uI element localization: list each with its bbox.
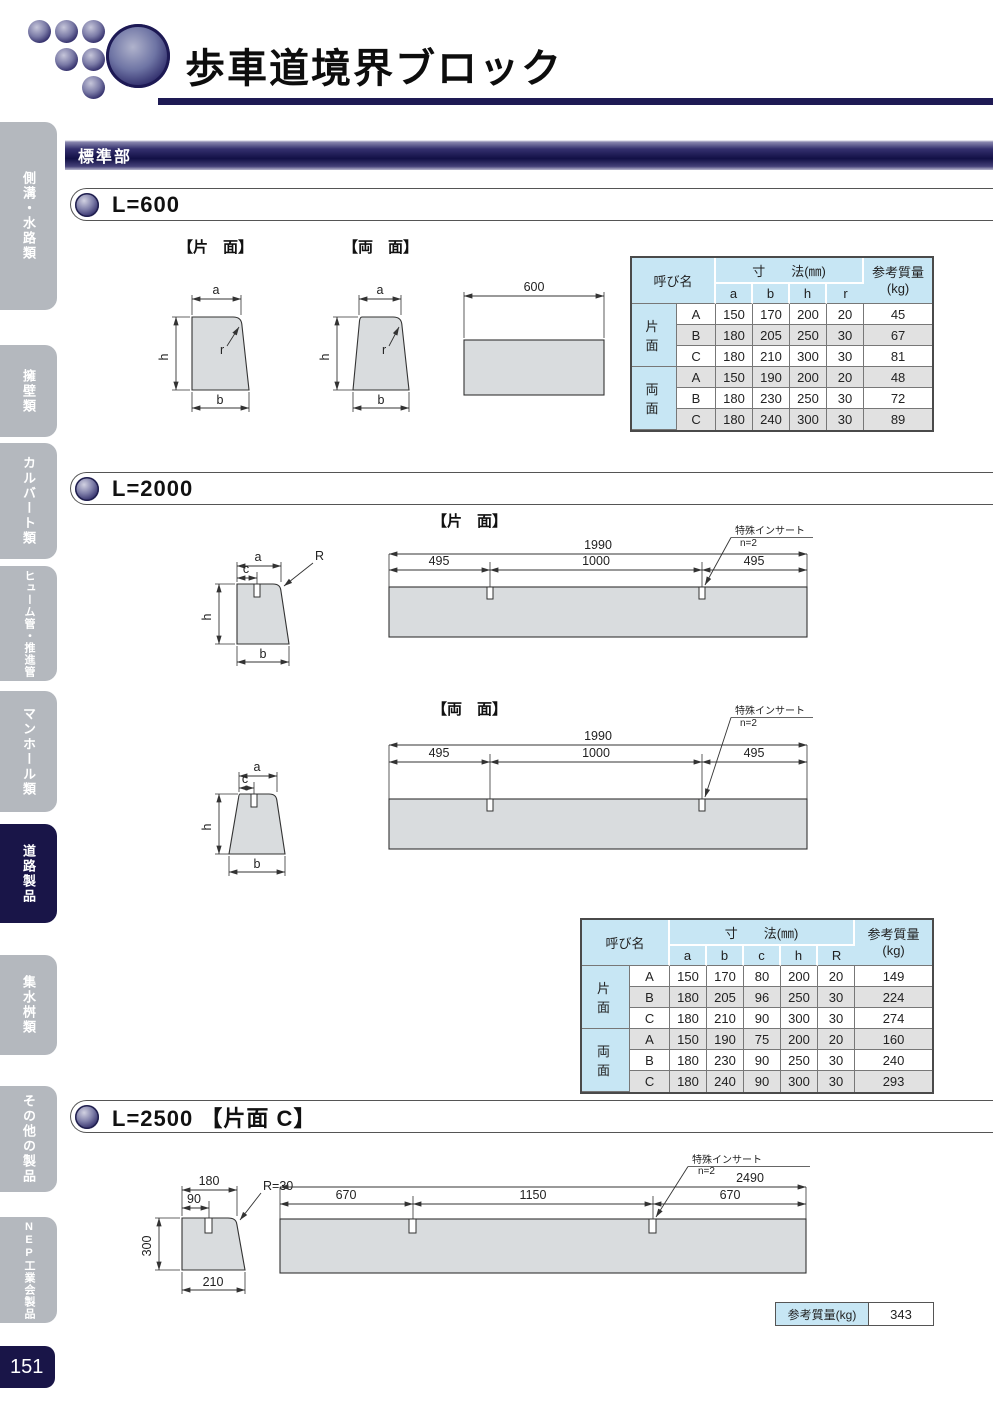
sidebar-item-sonota: その他の製品 (0, 1086, 57, 1192)
cell: 30 (827, 346, 864, 367)
cell: 293 (855, 1071, 932, 1092)
cell: 67 (864, 325, 932, 346)
dim-label: a (254, 760, 261, 774)
col-header: R (818, 946, 855, 966)
cell: A (630, 1029, 670, 1050)
sidebar-item-manhole: マンホール類 (0, 691, 57, 812)
col-header: h (790, 284, 827, 304)
logo-dot-icon (28, 20, 51, 43)
dim-label: 2490 (736, 1171, 764, 1185)
dim-label: h (200, 613, 214, 620)
catalog-page: 歩車道境界ブロック 側溝・水路類 擁壁類 カルバート類 ヒューム管・推進管 マン… (0, 0, 993, 1404)
col-header: 呼び名 (582, 920, 670, 966)
block-elevation (389, 799, 807, 849)
cell: 240 (753, 409, 790, 430)
cell: 170 (753, 304, 790, 325)
cell: B (677, 325, 716, 346)
cell: 81 (864, 346, 932, 367)
insert-notch (487, 587, 493, 599)
cell: 180 (716, 325, 753, 346)
sidebar-item-label: 側溝・水路類 (22, 171, 35, 261)
col-header: a (716, 284, 753, 304)
cell: 30 (827, 409, 864, 430)
table-row: 両 面 A1501902002048 (632, 367, 932, 388)
insert-notch (649, 1219, 656, 1233)
section-bullet-icon (75, 193, 99, 217)
cell: 150 (716, 367, 753, 388)
cell: 180 (670, 1071, 707, 1092)
mass-header: 参考質量 (868, 927, 920, 942)
table-row: 両 面 A1501907520020160 (582, 1029, 932, 1050)
cell: C (677, 346, 716, 367)
section-heading-l600: L=600 (70, 188, 993, 221)
cell: 180 (716, 409, 753, 430)
cell: 180 (670, 987, 707, 1008)
cell: 150 (670, 966, 707, 987)
col-header: 参考質量(kg) (864, 258, 932, 304)
dim-label: c (242, 772, 248, 786)
cell: 150 (716, 304, 753, 325)
drawing-l2000-katamen-elevation: 特殊インサート n=2 1990 495 1000 495 (383, 525, 813, 643)
dim-label: R (315, 549, 324, 563)
insert-notch (699, 587, 705, 599)
cell: 90 (744, 1050, 781, 1071)
ryomen-label: 【両 面】 (343, 236, 418, 257)
cell: 210 (753, 346, 790, 367)
sidebar-item-shusui: 集水桝類 (0, 955, 57, 1055)
drawing-l600-elevation: 600 (452, 268, 617, 403)
cell: 190 (707, 1029, 744, 1050)
table-row: 片 面 A1501702002045 (632, 304, 932, 325)
cell: 300 (781, 1071, 818, 1092)
dim-label: 1000 (582, 554, 610, 568)
section-title: L=2000 (112, 476, 193, 502)
drawing-l2000-katamen-cross: a c R h b (187, 532, 337, 692)
cell: 90 (744, 1071, 781, 1092)
logo-dot-icon (55, 20, 78, 43)
table-row: C1802109030030274 (582, 1008, 932, 1029)
cell: 20 (818, 1029, 855, 1050)
subsection-bar: 標準部 (65, 140, 993, 170)
cell: 240 (707, 1071, 744, 1092)
cell: 75 (744, 1029, 781, 1050)
cell: 30 (818, 1071, 855, 1092)
sidebar-item-label: マンホール類 (22, 707, 35, 797)
dim-label: 1150 (520, 1188, 547, 1202)
col-header: r (827, 284, 864, 304)
col-header: a (670, 946, 707, 966)
sidebar-item-humekan: ヒューム管・推進管 (0, 566, 57, 681)
page-number: 151 (0, 1346, 55, 1388)
logo-dot-icon (82, 48, 105, 71)
logo (0, 0, 180, 110)
cell: 170 (707, 966, 744, 987)
section-heading-l2500: L=2500 【片面 C】 (70, 1100, 993, 1133)
sidebar-item-doro-active: 道路製品 (0, 824, 57, 923)
sidebar-item-nep: NEP工業会製品 (0, 1217, 57, 1323)
cell: 180 (716, 346, 753, 367)
col-header: 参考質量(kg) (855, 920, 932, 966)
cell: 96 (744, 987, 781, 1008)
cell: 149 (855, 966, 932, 987)
dim-label: 1000 (582, 746, 610, 760)
cell: 240 (855, 1050, 932, 1071)
block-cross-section (353, 317, 409, 390)
cell: 205 (707, 987, 744, 1008)
insert-annotation: n=2 (698, 1166, 715, 1177)
insert-annotation: n=2 (740, 718, 757, 729)
cell: 250 (790, 388, 827, 409)
block-elevation (464, 340, 604, 395)
cell: 30 (818, 1008, 855, 1029)
col-header: b (707, 946, 744, 966)
cell: B (630, 987, 670, 1008)
cell: C (630, 1008, 670, 1029)
col-header: c (744, 946, 781, 966)
cell: 200 (790, 304, 827, 325)
insert-notch (254, 584, 260, 597)
cell: 89 (864, 409, 932, 430)
mass-unit: (kg) (887, 281, 909, 296)
table-row: B1802302503072 (632, 388, 932, 409)
cell: 30 (827, 325, 864, 346)
mass-header: 参考質量 (872, 265, 924, 280)
cell: 20 (827, 367, 864, 388)
cell: 20 (818, 966, 855, 987)
block-cross-section (237, 584, 289, 644)
dim-label: h (318, 353, 332, 360)
section-title: L=600 (112, 192, 180, 218)
section-bullet-icon (75, 477, 99, 501)
sidebar-item-yoheki: 擁壁類 (0, 345, 57, 437)
table-row: 片 面 A1501708020020149 (582, 966, 932, 987)
cell: 150 (670, 1029, 707, 1050)
cell: B (677, 388, 716, 409)
logo-dot-icon (82, 76, 105, 99)
reference-mass-label: 参考質量(kg) (775, 1302, 869, 1326)
cell: 30 (818, 987, 855, 1008)
dim-label: h (200, 823, 214, 830)
cell: 300 (790, 409, 827, 430)
table-row: B1802052503067 (632, 325, 932, 346)
cell: 200 (781, 1029, 818, 1050)
dim-label: a (213, 283, 220, 297)
cell: 250 (790, 325, 827, 346)
insert-notch (409, 1219, 416, 1233)
cell: 20 (827, 304, 864, 325)
sidebar-item-label: NEP工業会製品 (23, 1221, 34, 1320)
cell: 190 (753, 367, 790, 388)
cell: 250 (781, 1050, 818, 1071)
dim-label: c (243, 562, 249, 576)
cell: 230 (753, 388, 790, 409)
cell: 250 (781, 987, 818, 1008)
cell: 180 (716, 388, 753, 409)
reference-mass-value: 343 (869, 1302, 934, 1326)
dim-label: 670 (336, 1188, 357, 1202)
dim-label: a (377, 283, 384, 297)
table-row: C1802103003081 (632, 346, 932, 367)
cell: 90 (744, 1008, 781, 1029)
cell: 205 (753, 325, 790, 346)
insert-annotation: 特殊インサート (735, 704, 805, 717)
cell: 224 (855, 987, 932, 1008)
dim-label: b (378, 393, 385, 407)
reference-mass-box: 参考質量(kg) 343 (775, 1302, 934, 1326)
block-elevation (389, 587, 807, 637)
cell: 200 (781, 966, 818, 987)
insert-annotation: 特殊インサート (692, 1153, 762, 1166)
insert-notch (251, 794, 257, 807)
logo-dot-icon (82, 20, 105, 43)
insert-annotation: 特殊インサート (735, 524, 805, 537)
col-header: 呼び名 (632, 258, 716, 304)
dim-label: 90 (187, 1192, 201, 1206)
table-row: C1802403003089 (632, 409, 932, 430)
cell: 45 (864, 304, 932, 325)
dim-label: r (382, 343, 386, 357)
page-title: 歩車道境界ブロック (185, 36, 563, 94)
insert-notch (699, 799, 705, 811)
dim-label: 1990 (584, 729, 612, 743)
cell: 300 (790, 346, 827, 367)
cell: 180 (670, 1050, 707, 1071)
dim-label: h (157, 353, 171, 360)
sidebar-item-culvert: カルバート類 (0, 443, 57, 559)
sidebar-item-label: 集水桝類 (22, 975, 35, 1035)
dim-label: 670 (720, 1188, 741, 1202)
group-label: 片 面 (582, 966, 630, 1029)
cell: 180 (670, 1008, 707, 1029)
sidebar-item-label: ヒューム管・推進管 (23, 570, 34, 678)
cell: A (677, 367, 716, 388)
cell: 230 (707, 1050, 744, 1071)
cell: B (630, 1050, 670, 1071)
cell: 30 (827, 388, 864, 409)
cell: 210 (707, 1008, 744, 1029)
drawing-l2000-ryomen-elevation: 特殊インサート n=2 1990 495 1000 495 (383, 705, 813, 855)
dim-label: b (254, 857, 261, 871)
section-heading-l2000: L=2000 (70, 472, 993, 505)
col-header: h (781, 946, 818, 966)
col-header: 寸 法(㎜) (670, 920, 855, 946)
dim-label: 495 (429, 554, 450, 568)
sidebar-item-label: 擁壁類 (22, 369, 35, 414)
dim-label: 495 (429, 746, 450, 760)
drawing-l600-ryomen-cross: a r h b (313, 265, 448, 420)
dim-label: 600 (524, 280, 545, 294)
logo-sphere-icon (106, 24, 170, 88)
cell: 80 (744, 966, 781, 987)
insert-notch (205, 1218, 212, 1233)
drawing-l600-katamen-cross: a r h b (150, 265, 285, 420)
cell: 48 (864, 367, 932, 388)
cell: 72 (864, 388, 932, 409)
dim-label: b (260, 647, 267, 661)
group-label: 片 面 (632, 304, 677, 367)
table-l600: 呼び名 寸 法(㎜) 参考質量(kg) a b h r 片 面 A1501702… (630, 256, 934, 432)
dim-label: 495 (744, 554, 765, 568)
dim-label: 300 (140, 1236, 154, 1257)
title-rule (158, 98, 993, 105)
col-header: 寸 法(㎜) (716, 258, 864, 284)
table-row: B1802059625030224 (582, 987, 932, 1008)
sidebar-item-label: カルバート類 (22, 456, 35, 546)
cell: 300 (781, 1008, 818, 1029)
cell: A (630, 966, 670, 987)
section-title: L=2500 【片面 C】 (112, 1101, 316, 1133)
block-cross-section (182, 1218, 245, 1270)
drawing-l2500-elevation: 特殊インサート n=2 2490 670 1150 670 (272, 1155, 812, 1280)
cell: 200 (790, 367, 827, 388)
group-label: 両 面 (582, 1029, 630, 1092)
drawing-l2000-ryomen-cross: a c h b (187, 742, 337, 902)
cell: 160 (855, 1029, 932, 1050)
table-row: C1802409030030293 (582, 1071, 932, 1092)
group-label: 両 面 (632, 367, 677, 430)
dim-label: 495 (744, 746, 765, 760)
logo-dot-icon (55, 48, 78, 71)
dim-label: 180 (199, 1174, 220, 1188)
cell: C (630, 1071, 670, 1092)
cell: 274 (855, 1008, 932, 1029)
mass-unit: (kg) (882, 943, 904, 958)
cell: C (677, 409, 716, 430)
sidebar-item-label: 道路製品 (22, 844, 35, 904)
col-header: b (753, 284, 790, 304)
dim-label: 210 (203, 1275, 224, 1289)
dim-label: b (217, 393, 224, 407)
insert-notch (487, 799, 493, 811)
subsection-bar-label: 標準部 (65, 143, 132, 167)
sidebar-item-label: その他の製品 (22, 1094, 35, 1184)
block-elevation (280, 1219, 806, 1273)
insert-annotation: n=2 (740, 538, 757, 549)
table-row: B1802309025030240 (582, 1050, 932, 1071)
sidebar-item-sokko-suiro: 側溝・水路類 (0, 122, 57, 310)
table-l2000: 呼び名 寸 法(㎜) 参考質量(kg) a b c h R 片 面 A15017… (580, 918, 934, 1094)
cell: A (677, 304, 716, 325)
cell: 30 (818, 1050, 855, 1071)
dim-label: a (255, 550, 262, 564)
section-bullet-icon (75, 1105, 99, 1129)
dim-label: 1990 (584, 538, 612, 552)
dim-label: r (220, 343, 224, 357)
katamen-label: 【片 面】 (178, 236, 253, 257)
